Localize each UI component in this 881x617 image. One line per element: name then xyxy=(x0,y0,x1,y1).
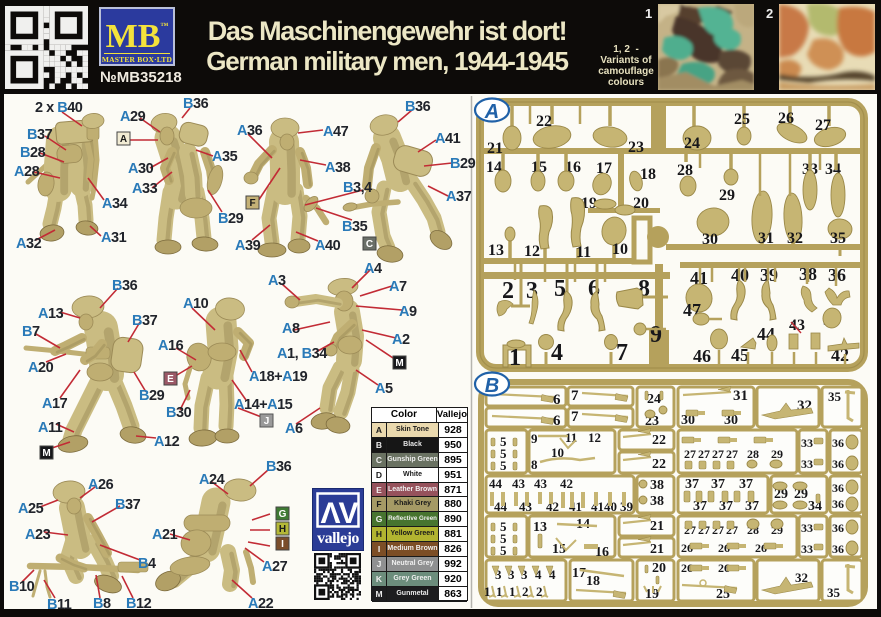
svg-text:31: 31 xyxy=(758,230,774,247)
svg-text:A36: A36 xyxy=(237,123,263,139)
svg-text:27: 27 xyxy=(815,117,831,134)
svg-text:A40: A40 xyxy=(315,238,341,254)
svg-text:44: 44 xyxy=(494,499,508,514)
svg-text:24: 24 xyxy=(684,135,700,152)
svg-text:A13: A13 xyxy=(38,306,64,322)
svg-text:H: H xyxy=(279,524,286,535)
svg-text:36: 36 xyxy=(832,521,844,535)
svg-text:A33: A33 xyxy=(132,181,158,197)
svg-text:13: 13 xyxy=(533,520,547,535)
svg-text:12: 12 xyxy=(524,243,540,260)
svg-text:B4: B4 xyxy=(138,556,156,572)
svg-text:A16: A16 xyxy=(158,338,184,354)
svg-text:A11: A11 xyxy=(38,420,63,436)
svg-text:B36: B36 xyxy=(266,459,292,475)
svg-text:27: 27 xyxy=(712,447,724,461)
svg-text:6: 6 xyxy=(553,413,561,429)
svg-text:33: 33 xyxy=(801,521,813,535)
svg-text:A21: A21 xyxy=(152,527,178,543)
svg-text:A31: A31 xyxy=(101,230,127,246)
svg-text:A39: A39 xyxy=(235,238,261,254)
svg-text:B10: B10 xyxy=(9,579,35,595)
svg-text:vallejo: vallejo xyxy=(317,530,359,547)
svg-text:29: 29 xyxy=(771,447,783,461)
svg-text:A22: A22 xyxy=(248,596,274,612)
svg-text:25: 25 xyxy=(734,111,750,128)
svg-text:A27: A27 xyxy=(262,559,288,575)
svg-text:9: 9 xyxy=(650,322,662,348)
svg-text:J: J xyxy=(264,416,270,427)
svg-text:A29: A29 xyxy=(120,109,146,125)
svg-text:B37: B37 xyxy=(27,127,53,143)
svg-text:A17: A17 xyxy=(42,396,68,412)
svg-text:B29: B29 xyxy=(218,211,244,227)
svg-text:M: M xyxy=(395,358,403,369)
svg-text:A37: A37 xyxy=(446,189,472,205)
svg-text:E: E xyxy=(167,374,174,385)
svg-text:5: 5 xyxy=(500,543,507,558)
svg-text:9: 9 xyxy=(531,431,538,446)
svg-text:B36: B36 xyxy=(405,99,431,115)
svg-text:43: 43 xyxy=(512,476,526,491)
svg-text:37: 37 xyxy=(685,477,699,492)
svg-text:37: 37 xyxy=(711,477,725,492)
svg-text:A: A xyxy=(484,101,499,123)
svg-text:A9: A9 xyxy=(399,304,417,320)
svg-text:26: 26 xyxy=(778,110,794,127)
svg-text:30: 30 xyxy=(702,231,718,248)
svg-text:35: 35 xyxy=(828,389,842,404)
svg-text:43: 43 xyxy=(534,476,548,491)
svg-text:A18+A19: A18+A19 xyxy=(249,369,308,385)
svg-text:33: 33 xyxy=(801,457,813,471)
svg-text:B: B xyxy=(485,375,499,397)
svg-text:43: 43 xyxy=(789,317,805,334)
svg-text:5: 5 xyxy=(500,458,507,473)
svg-text:37: 37 xyxy=(739,477,753,492)
svg-text:21: 21 xyxy=(487,140,503,157)
svg-text:22: 22 xyxy=(652,433,666,448)
svg-text:36: 36 xyxy=(832,481,844,495)
svg-text:A26: A26 xyxy=(88,477,114,493)
svg-text:C: C xyxy=(366,239,373,250)
svg-text:33: 33 xyxy=(801,436,813,450)
svg-text:M: M xyxy=(42,448,50,459)
svg-text:G: G xyxy=(279,509,287,520)
svg-text:B29: B29 xyxy=(450,156,476,172)
svg-text:B36: B36 xyxy=(112,278,138,294)
svg-text:23: 23 xyxy=(628,139,644,156)
svg-text:A14+A15: A14+A15 xyxy=(234,397,293,413)
svg-text:B12: B12 xyxy=(126,596,152,612)
svg-text:2 x B40: 2 x B40 xyxy=(35,100,83,116)
svg-text:10: 10 xyxy=(612,241,628,258)
svg-text:B7: B7 xyxy=(22,324,40,340)
svg-text:A10: A10 xyxy=(183,296,209,312)
svg-text:A30: A30 xyxy=(128,161,154,177)
svg-text:A1, B34: A1, B34 xyxy=(277,346,327,362)
svg-text:A23: A23 xyxy=(25,527,51,543)
svg-text:38: 38 xyxy=(650,478,664,493)
svg-text:38: 38 xyxy=(650,494,664,509)
svg-text:A7: A7 xyxy=(389,279,407,295)
svg-text:B3,4: B3,4 xyxy=(343,180,372,196)
svg-text:7: 7 xyxy=(571,388,579,404)
svg-text:35: 35 xyxy=(830,230,846,247)
svg-text:27: 27 xyxy=(726,447,738,461)
svg-text:A38: A38 xyxy=(325,160,351,176)
svg-text:7: 7 xyxy=(616,340,628,366)
svg-text:B36: B36 xyxy=(183,96,209,112)
svg-text:36: 36 xyxy=(832,497,844,511)
svg-text:11: 11 xyxy=(565,430,577,445)
svg-text:12: 12 xyxy=(588,430,601,445)
svg-text:28: 28 xyxy=(747,447,759,461)
svg-text:13: 13 xyxy=(488,242,504,259)
svg-text:A2: A2 xyxy=(392,332,410,348)
svg-text:22: 22 xyxy=(536,113,552,130)
svg-text:11: 11 xyxy=(576,244,591,261)
svg-text:36: 36 xyxy=(832,457,844,471)
svg-text:A41: A41 xyxy=(435,131,461,147)
svg-text:17: 17 xyxy=(572,566,586,581)
svg-text:7: 7 xyxy=(571,409,579,425)
svg-text:A20: A20 xyxy=(28,360,54,376)
svg-text:A25: A25 xyxy=(18,501,44,517)
svg-text:6: 6 xyxy=(553,392,561,408)
svg-text:A: A xyxy=(120,134,127,145)
svg-text:42: 42 xyxy=(560,476,573,491)
svg-text:B8: B8 xyxy=(93,596,111,612)
svg-text:B37: B37 xyxy=(132,313,158,329)
svg-text:F: F xyxy=(249,198,255,209)
svg-text:B37: B37 xyxy=(115,497,141,513)
svg-text:A35: A35 xyxy=(212,149,238,165)
svg-text:44: 44 xyxy=(489,476,503,491)
svg-text:35: 35 xyxy=(827,585,841,600)
svg-text:ΛV: ΛV xyxy=(320,497,358,530)
svg-text:29: 29 xyxy=(719,187,735,204)
svg-text:27: 27 xyxy=(698,447,710,461)
svg-text:A34: A34 xyxy=(102,196,128,212)
svg-text:22: 22 xyxy=(652,457,666,472)
svg-text:21: 21 xyxy=(650,542,664,557)
svg-text:20: 20 xyxy=(652,561,666,576)
svg-text:A24: A24 xyxy=(199,472,225,488)
svg-text:A4: A4 xyxy=(364,261,382,277)
svg-text:A3: A3 xyxy=(268,273,286,289)
svg-text:24: 24 xyxy=(647,392,661,407)
svg-text:18: 18 xyxy=(586,574,600,589)
svg-text:B35: B35 xyxy=(342,219,368,235)
svg-text:A8: A8 xyxy=(282,321,300,337)
svg-text:8: 8 xyxy=(531,457,538,472)
svg-text:A5: A5 xyxy=(375,381,393,397)
svg-text:A12: A12 xyxy=(154,434,180,450)
svg-text:A32: A32 xyxy=(16,236,42,252)
svg-text:I: I xyxy=(281,539,284,550)
svg-text:A47: A47 xyxy=(323,124,349,140)
svg-text:1: 1 xyxy=(509,345,521,371)
svg-text:B30: B30 xyxy=(166,405,192,421)
svg-text:31: 31 xyxy=(733,388,748,404)
svg-text:46: 46 xyxy=(693,346,711,366)
svg-text:36: 36 xyxy=(832,436,844,450)
svg-text:B28: B28 xyxy=(20,145,46,161)
svg-text:33: 33 xyxy=(801,542,813,556)
svg-text:21: 21 xyxy=(650,519,664,534)
svg-text:15: 15 xyxy=(552,542,566,557)
svg-text:36: 36 xyxy=(832,542,844,556)
svg-text:A6: A6 xyxy=(285,421,303,437)
svg-text:27: 27 xyxy=(684,447,696,461)
svg-text:B11: B11 xyxy=(47,597,72,613)
svg-text:B29: B29 xyxy=(139,388,165,404)
svg-text:A28: A28 xyxy=(14,164,40,180)
svg-text:32: 32 xyxy=(787,230,803,247)
